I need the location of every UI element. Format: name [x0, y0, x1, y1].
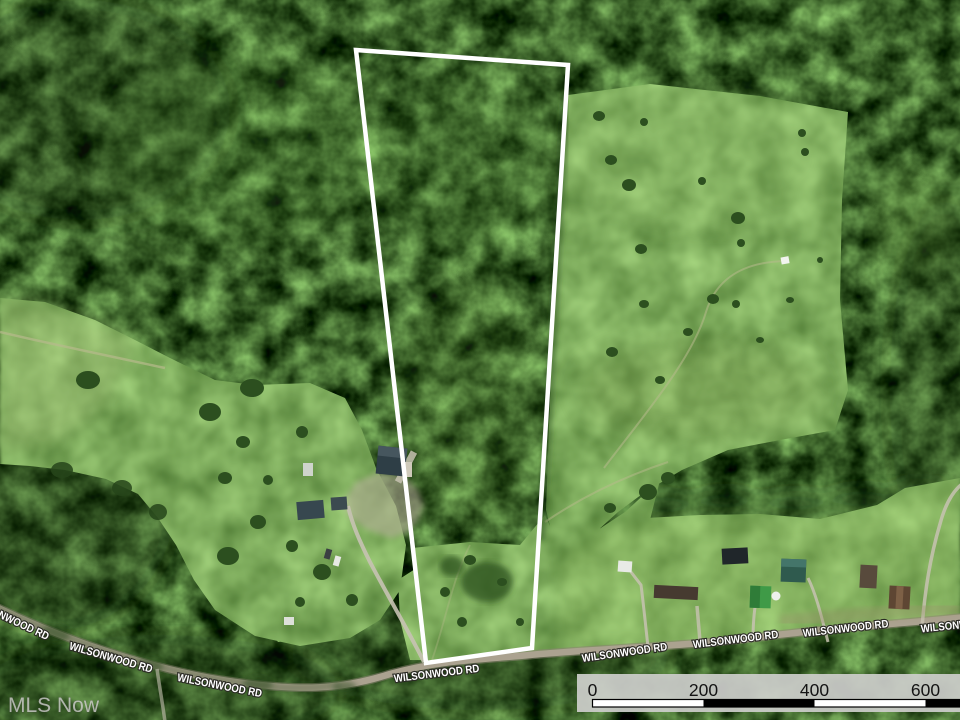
svg-text:200: 200: [689, 680, 718, 700]
svg-text:400: 400: [800, 680, 829, 700]
svg-text:600: 600: [911, 680, 940, 700]
svg-text:0: 0: [588, 680, 598, 700]
svg-text:MLS Now: MLS Now: [8, 694, 100, 717]
